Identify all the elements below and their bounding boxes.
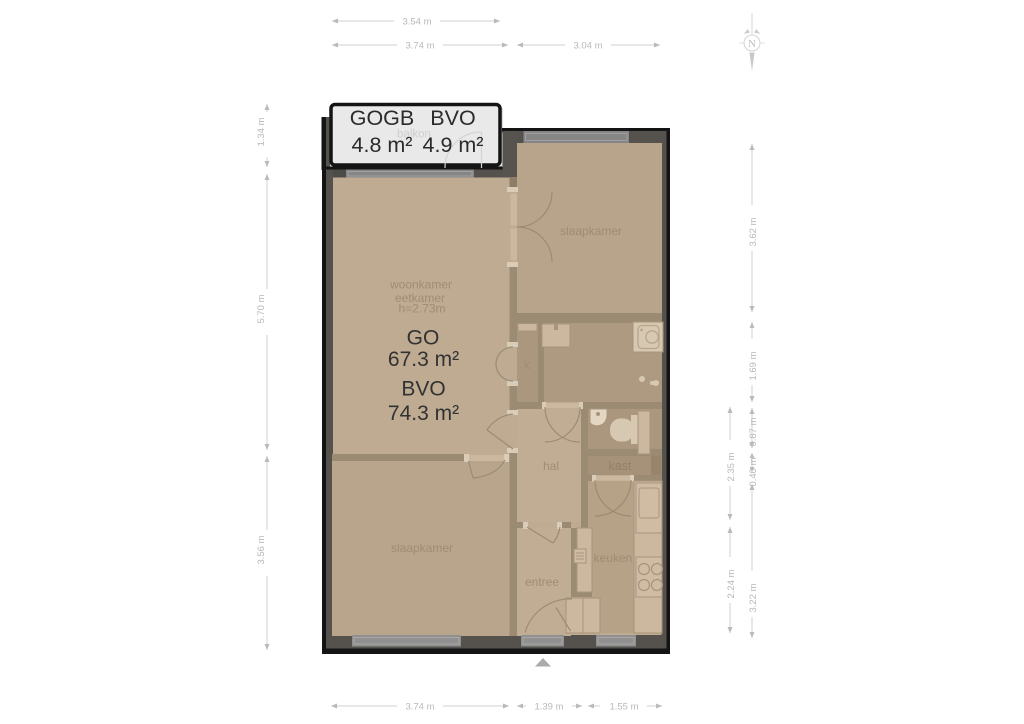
svg-text:74.3 m²: 74.3 m² xyxy=(388,402,459,425)
svg-text:3.22 m: 3.22 m xyxy=(748,583,759,612)
svg-text:N: N xyxy=(748,38,756,50)
svg-text:1.69 m: 1.69 m xyxy=(748,351,759,380)
svg-text:GO: GO xyxy=(407,327,440,350)
svg-text:k: k xyxy=(524,358,531,372)
svg-text:entree: entree xyxy=(525,575,559,589)
svg-text:hal: hal xyxy=(543,459,559,473)
svg-text:1.55 m: 1.55 m xyxy=(609,702,638,713)
svg-text:4.9 m²: 4.9 m² xyxy=(423,133,484,157)
svg-text:h=2.73m: h=2.73m xyxy=(398,302,445,316)
svg-text:2.35 m: 2.35 m xyxy=(726,452,737,481)
svg-text:1.34 m: 1.34 m xyxy=(256,117,267,146)
svg-text:3.62 m: 3.62 m xyxy=(748,217,759,246)
svg-text:4.8 m²: 4.8 m² xyxy=(352,133,413,157)
svg-text:keuken: keuken xyxy=(594,551,633,565)
svg-text:3.74 m: 3.74 m xyxy=(405,702,434,713)
svg-text:3.74 m: 3.74 m xyxy=(405,41,434,52)
svg-text:slaapkamer: slaapkamer xyxy=(560,224,622,238)
svg-text:67.3 m²: 67.3 m² xyxy=(388,348,459,371)
svg-text:1.39 m: 1.39 m xyxy=(534,702,563,713)
svg-text:BVO: BVO xyxy=(401,378,445,401)
svg-text:5.70 m: 5.70 m xyxy=(256,294,267,323)
svg-text:3.54 m: 3.54 m xyxy=(402,17,431,28)
svg-text:woonkamer: woonkamer xyxy=(389,278,452,292)
svg-text:slaapkamer: slaapkamer xyxy=(391,541,453,555)
svg-text:BVO: BVO xyxy=(430,106,475,130)
svg-text:3.56 m: 3.56 m xyxy=(256,535,267,564)
svg-text:0.40 m: 0.40 m xyxy=(748,457,759,486)
svg-text:0.87 m: 0.87 m xyxy=(748,417,759,446)
svg-text:GOGB: GOGB xyxy=(350,106,415,130)
svg-text:3.04 m: 3.04 m xyxy=(573,41,602,52)
svg-text:2.24 m: 2.24 m xyxy=(726,569,737,598)
svg-text:kast: kast xyxy=(609,459,632,473)
